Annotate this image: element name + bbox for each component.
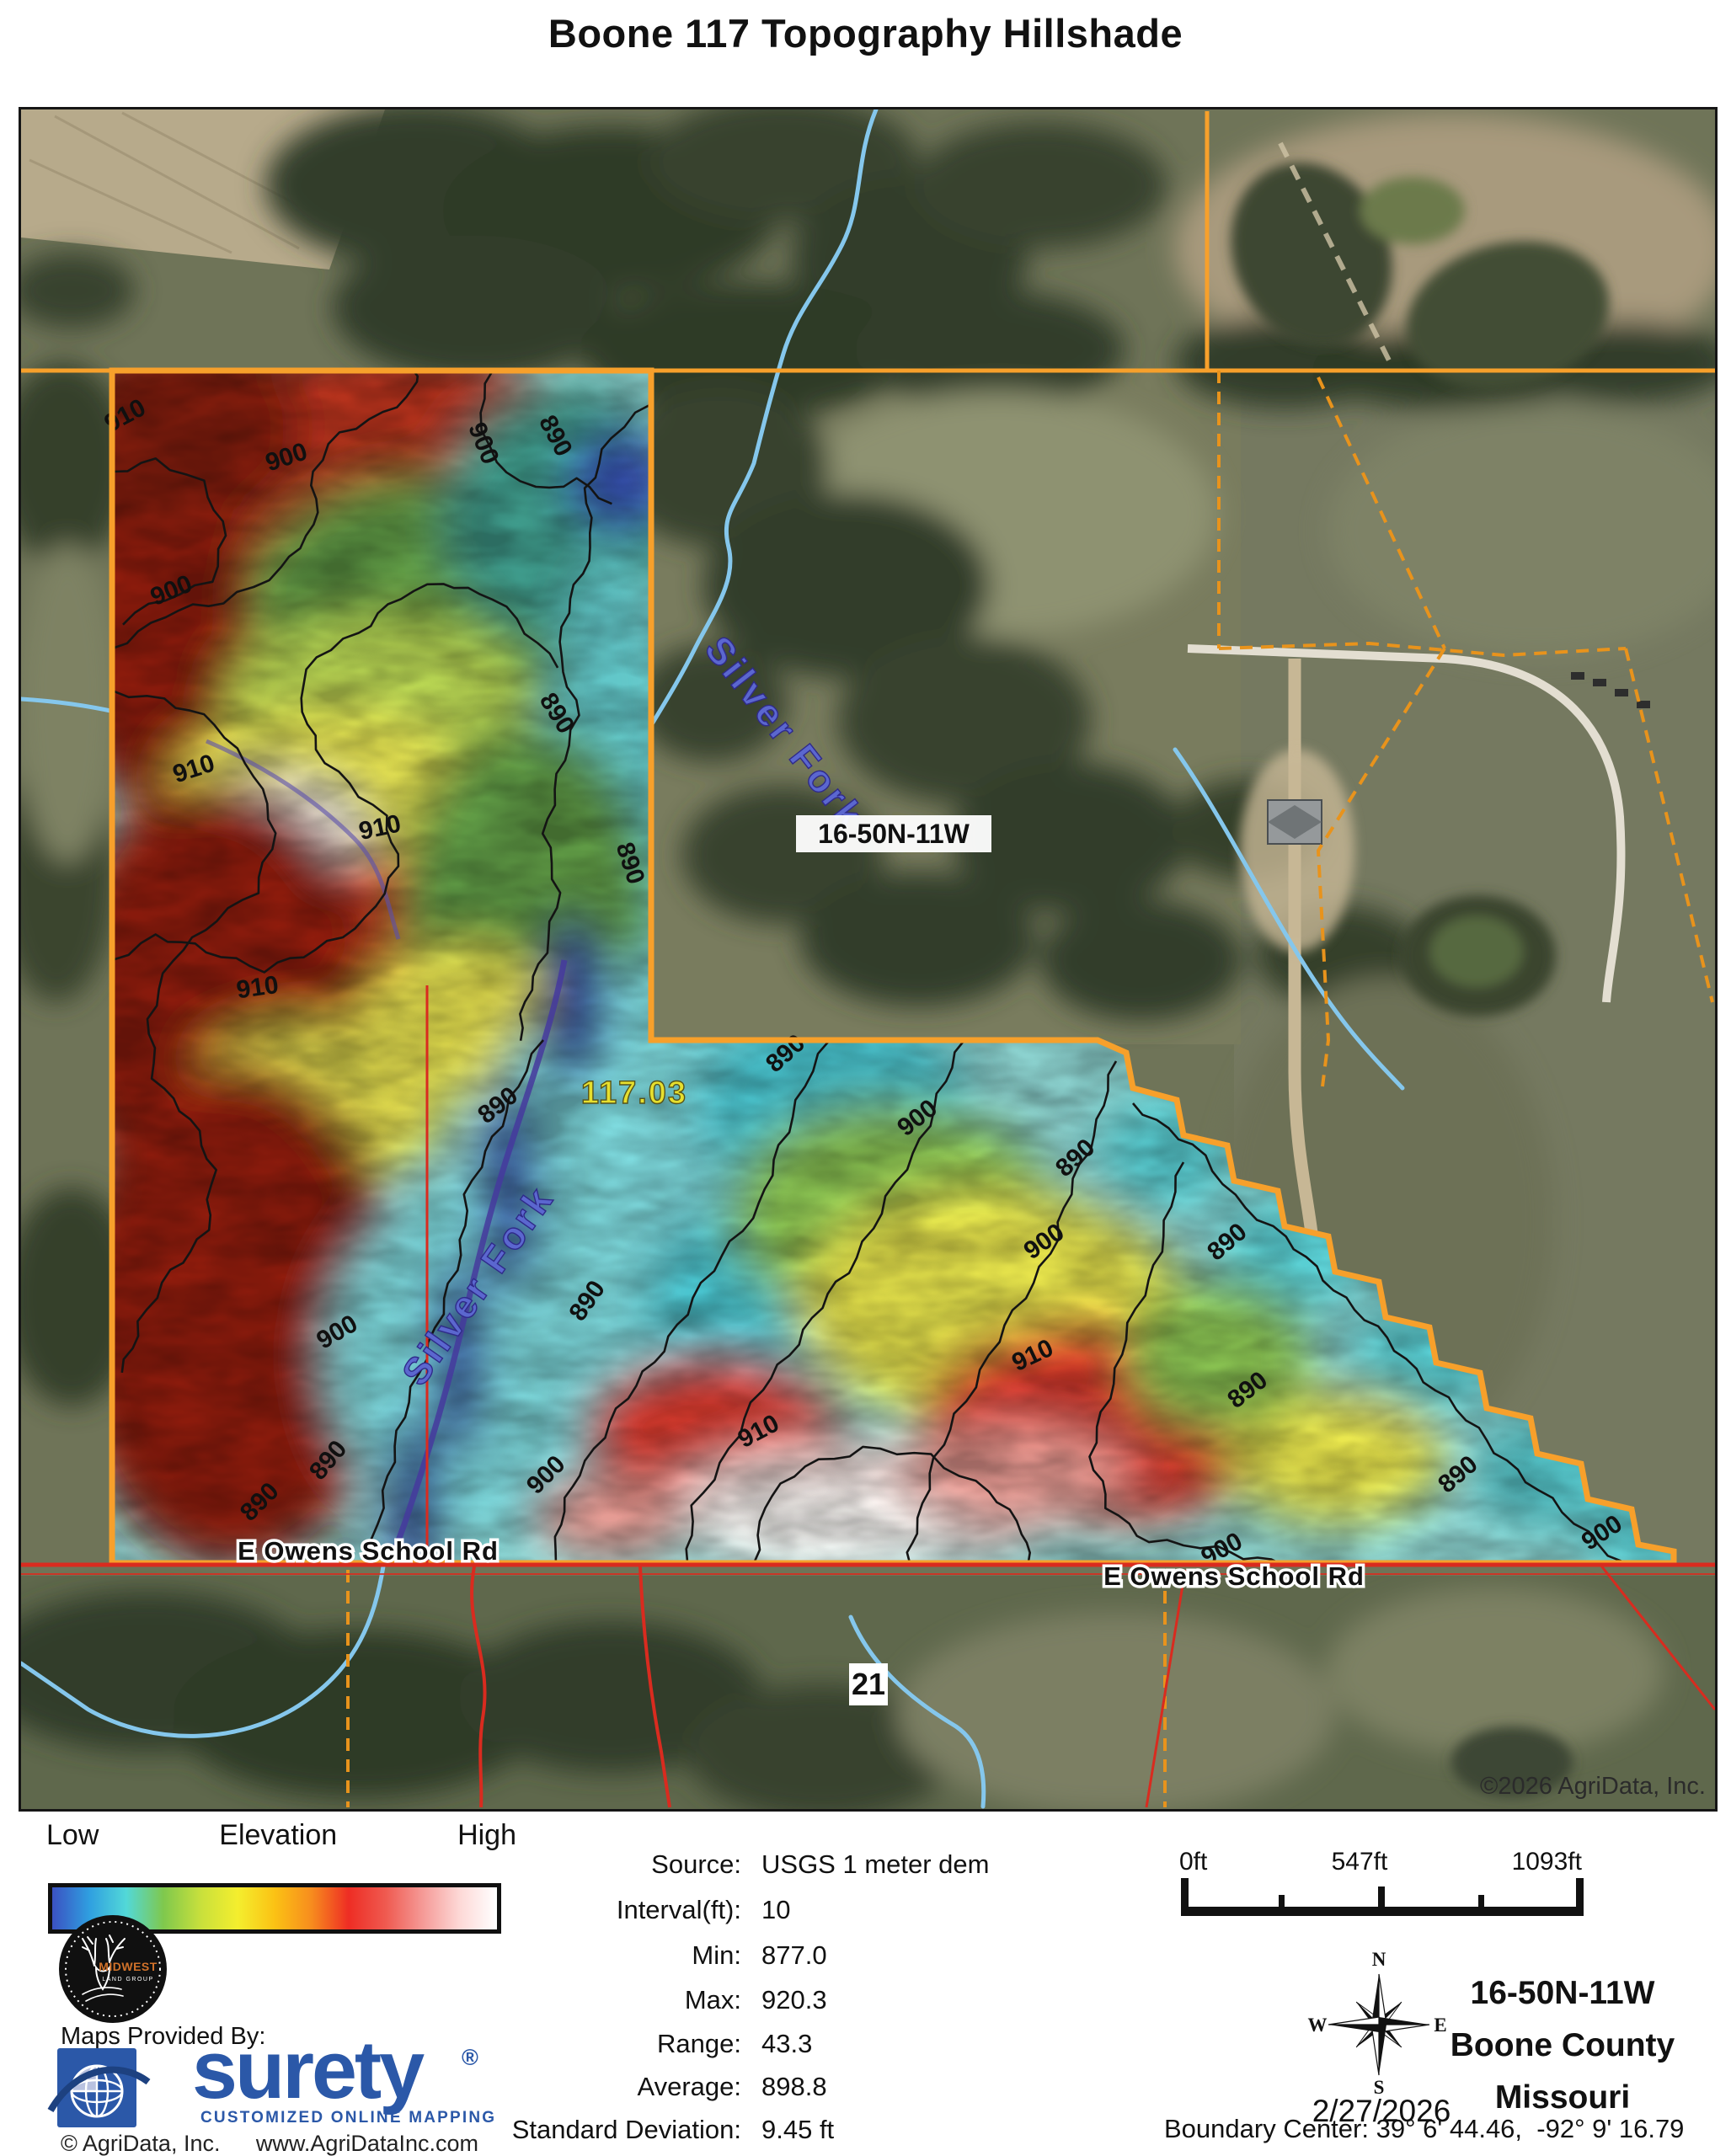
stat-value: 9.45 ft <box>761 2115 834 2145</box>
acreage-label: 117.03 <box>581 1075 687 1111</box>
elevation-legend-labels: Low Elevation High <box>46 1819 516 1852</box>
scalebar-end: 1093ft <box>1512 1848 1582 1876</box>
scale-bar <box>1181 1878 1584 1917</box>
legend-high-label: High <box>457 1819 516 1852</box>
map-svg: 9109009008909008909109108909108908909008… <box>21 109 1715 1809</box>
midwest-land-group-logo: MIDWEST LAND GROUP <box>57 1913 168 2025</box>
stat-row-interval: Interval(ft): 10 <box>455 1895 1095 1929</box>
scalebar-mid: 547ft <box>1332 1848 1388 1876</box>
stat-label: Min: <box>455 1940 741 1971</box>
compass-w: W <box>1308 2015 1328 2036</box>
agridata-website: www.AgriDataInc.com <box>256 2131 478 2156</box>
legend-title: Elevation <box>219 1819 337 1852</box>
stat-value: 877.0 <box>761 1940 827 1971</box>
compass-s: S <box>1374 2077 1385 2095</box>
county-label: Boone County <box>1424 2020 1702 2072</box>
contour-label: 910 <box>235 971 280 1005</box>
page-title: Boone 117 Topography Hillshade <box>0 10 1731 56</box>
road-label-left: E Owens School Rd <box>238 1536 499 1566</box>
svg-text:16-50N-11W: 16-50N-11W <box>818 819 970 849</box>
midwest-logo-text: MIDWEST <box>99 1960 158 1973</box>
surety-logo-text: surety <box>192 2028 422 2112</box>
section-number-label: 21 <box>849 1663 888 1705</box>
stat-row-stddev: Standard Deviation: 9.45 ft <box>455 2115 1095 2148</box>
location-block: 16-50N-11W Boone County Missouri <box>1424 1967 1702 2124</box>
surety-tagline: CUSTOMIZED ONLINE MAPPING <box>200 2109 496 2127</box>
stat-value: USGS 1 meter dem <box>761 1849 989 1880</box>
midwest-logo-subtext: LAND GROUP <box>102 1977 153 1983</box>
agridata-copyright: © AgriData, Inc. 2025 <box>61 2131 256 2156</box>
stat-value: 898.8 <box>761 2072 827 2102</box>
scalebar-start: 0ft <box>1179 1848 1207 1876</box>
compass-n: N <box>1372 1951 1386 1970</box>
township-label: 16-50N-11W <box>1424 1967 1702 2020</box>
stat-label: Standard Deviation: <box>455 2115 741 2145</box>
stat-label: Range: <box>455 2029 741 2059</box>
scalebar-labels: 0ft 547ft 1093ft <box>1179 1848 1582 1876</box>
stat-label: Interval(ft): <box>455 1895 741 1925</box>
map-canvas: 9109009008909008909109108909108908909008… <box>19 107 1718 1812</box>
stat-row-range: Range: 43.3 <box>455 2029 1095 2063</box>
map-copyright: ©2026 AgriData, Inc. <box>1480 1773 1706 1800</box>
surety-globe-icon <box>57 2048 136 2127</box>
page: Boone 117 Topography Hillshade <box>0 0 1731 2156</box>
stat-value: 43.3 <box>761 2029 812 2059</box>
stat-value: 920.3 <box>761 1985 827 2015</box>
compass-star <box>1328 1974 1429 2075</box>
boundary-center-label: Boundary Center: 39° 6' 44.46, -92° 9' 1… <box>1164 2114 1724 2144</box>
legend-low-label: Low <box>46 1819 99 1852</box>
township-map-label: 16-50N-11W <box>796 815 991 852</box>
stat-value: 10 <box>761 1895 790 1925</box>
stat-label: Max: <box>455 1985 741 2015</box>
stat-row-source: Source: USGS 1 meter dem <box>455 1849 1095 1883</box>
stat-label: Average: <box>455 2072 741 2102</box>
stat-row-average: Average: 898.8 <box>455 2072 1095 2105</box>
stat-row-min: Min: 877.0 <box>455 1940 1095 1974</box>
stat-row-max: Max: 920.3 <box>455 1985 1095 2019</box>
stat-label: Source: <box>455 1849 741 1880</box>
road-label-right: E Owens School Rd <box>1103 1561 1365 1591</box>
svg-text:21: 21 <box>852 1667 885 1701</box>
agridata-credit-row: © AgriData, Inc. 2025 www.AgriDataInc.co… <box>61 2131 478 2156</box>
